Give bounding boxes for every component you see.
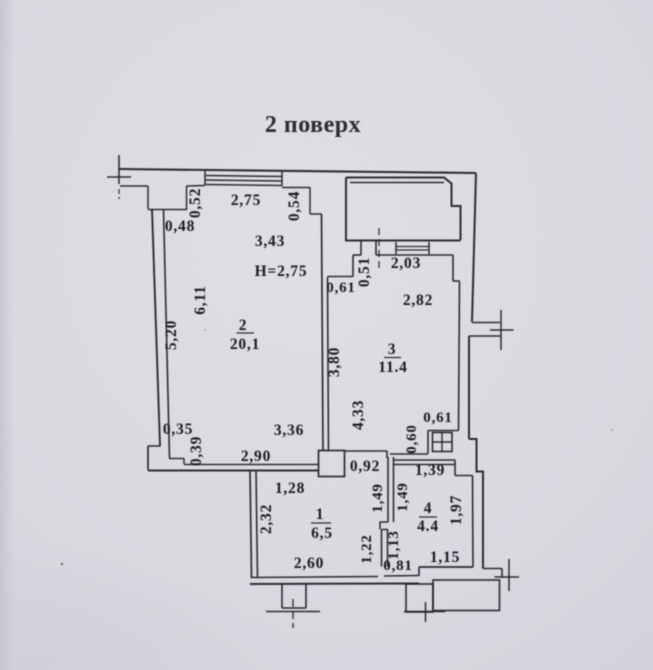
svg-text:0,51: 0,51 xyxy=(356,257,373,287)
svg-text:2,90: 2,90 xyxy=(241,448,271,465)
svg-text:0,92: 0,92 xyxy=(350,458,380,475)
svg-text:5,20: 5,20 xyxy=(163,320,180,350)
svg-text:3,80: 3,80 xyxy=(326,347,343,377)
svg-text:4,33: 4,33 xyxy=(350,400,367,430)
svg-text:2: 2 xyxy=(239,317,248,334)
svg-text:6,11: 6,11 xyxy=(192,285,209,314)
svg-text:Н=2,75: Н=2,75 xyxy=(255,263,308,280)
svg-text:1,13: 1,13 xyxy=(386,530,402,559)
svg-text:0,81: 0,81 xyxy=(383,558,412,574)
svg-text:11.4: 11.4 xyxy=(378,359,407,376)
svg-text:1,49: 1,49 xyxy=(370,483,386,512)
svg-text:2,32: 2,32 xyxy=(258,504,275,534)
svg-text:2,03: 2,03 xyxy=(391,255,421,272)
svg-text:0,54: 0,54 xyxy=(286,191,303,221)
svg-text:6,5: 6,5 xyxy=(311,525,333,542)
svg-text:2,82: 2,82 xyxy=(403,292,433,309)
svg-text:1,97: 1,97 xyxy=(448,495,465,525)
svg-text:20,1: 20,1 xyxy=(230,336,260,353)
svg-text:2 поверх: 2 поверх xyxy=(265,112,361,138)
svg-text:0,60: 0,60 xyxy=(404,424,420,453)
svg-text:0,35: 0,35 xyxy=(163,421,193,438)
svg-text:0,52: 0,52 xyxy=(187,188,204,218)
svg-text:3,36: 3,36 xyxy=(274,422,304,439)
svg-text:0,61: 0,61 xyxy=(423,410,452,426)
svg-text:1,49: 1,49 xyxy=(395,482,411,511)
svg-text:2,75: 2,75 xyxy=(231,192,261,209)
svg-text:0,61: 0,61 xyxy=(326,280,355,296)
svg-text:1,39: 1,39 xyxy=(415,462,445,479)
svg-text:3,43: 3,43 xyxy=(255,233,285,250)
svg-text:4.4: 4.4 xyxy=(417,518,439,535)
svg-text:3: 3 xyxy=(388,341,397,358)
svg-text:1,22: 1,22 xyxy=(359,534,375,563)
svg-text:1,15: 1,15 xyxy=(430,549,460,566)
svg-text:1,28: 1,28 xyxy=(275,480,305,497)
svg-text:1: 1 xyxy=(316,506,325,523)
svg-text:0,39: 0,39 xyxy=(188,436,205,466)
svg-text:2,60: 2,60 xyxy=(294,555,324,572)
svg-text:4: 4 xyxy=(424,500,433,517)
svg-text:0,48: 0,48 xyxy=(165,218,195,235)
